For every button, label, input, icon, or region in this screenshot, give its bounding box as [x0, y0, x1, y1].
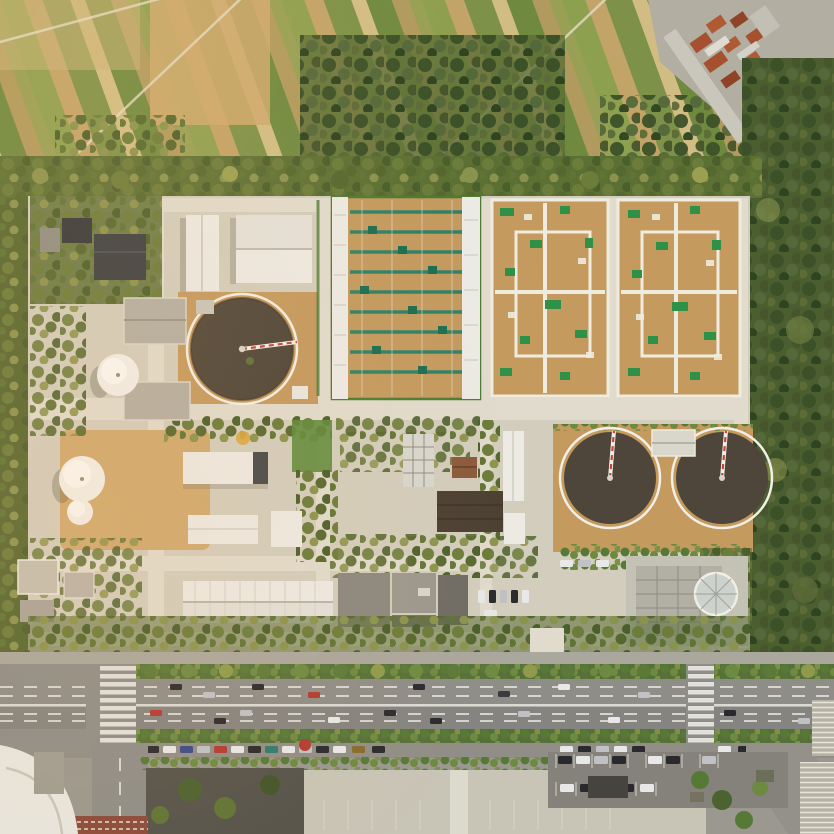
aerial-photo	[0, 0, 834, 834]
warm-light-overlay-2	[0, 0, 834, 834]
